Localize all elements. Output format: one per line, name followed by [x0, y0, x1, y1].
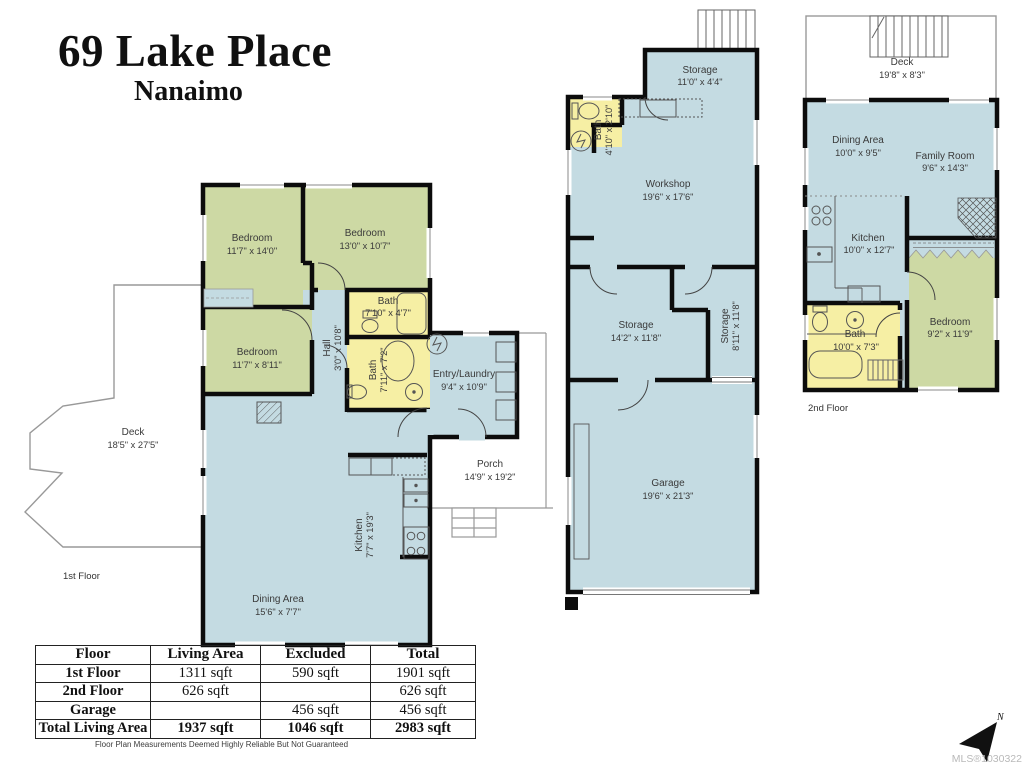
- cell-total: 1901 sqft: [371, 664, 476, 683]
- page-subtitle: Nanaimo: [134, 77, 332, 106]
- room-label-g-workshop-dims: 19'6" x 17'6": [643, 192, 694, 202]
- cell-floor: Total Living Area: [36, 720, 151, 739]
- first-floor-plan: Bedroom 11'7" x 14'0" Bedroom 13'0" x 10…: [25, 182, 553, 649]
- room-label-g-storage2-name: Storage: [618, 320, 653, 331]
- cell-total: 456 sqft: [371, 701, 476, 720]
- room-label-f1-deck-name: Deck: [122, 427, 146, 438]
- cell-excluded: [261, 683, 371, 702]
- room-label-f1-kitchen-dims: 7'7" x 19'3": [365, 512, 375, 558]
- room-label-f1-hall-name: Hall: [322, 339, 333, 356]
- col-header-living: Living Area: [151, 646, 261, 665]
- room-label-g-storage1-name: Storage: [682, 65, 717, 76]
- room-label-g-bath-dims: 4'10" x 2'10": [604, 105, 614, 156]
- cell-total: 2983 sqft: [371, 720, 476, 739]
- disclaimer-text: Floor Plan Measurements Deemed Highly Re…: [95, 740, 348, 749]
- title-block: 69 Lake Place Nanaimo: [58, 28, 332, 107]
- room-label-f1-bedroom1-dims: 11'7" x 14'0": [227, 246, 277, 256]
- room-label-f2-kitchen-name: Kitchen: [851, 233, 884, 244]
- room-label-f1-porch-name: Porch: [477, 459, 503, 470]
- cell-floor: 1st Floor: [36, 664, 151, 683]
- deck2-stairs: [870, 16, 948, 57]
- room-label-f1-deck-dims: 18'5" x 27'5": [108, 440, 159, 450]
- table-row-total: Total Living Area 1937 sqft 1046 sqft 29…: [36, 720, 476, 739]
- room-label-f1-bath2-dims: 7'11" x 7'2": [379, 347, 389, 392]
- garage-stairs: [698, 10, 755, 50]
- room-label-f1-bedroom2-name: Bedroom: [345, 228, 386, 239]
- mls-number: MLS®1030322: [952, 753, 1022, 765]
- room-label-f1-hall-dims: 3'0" x 10'8": [333, 325, 343, 371]
- room-label-f1-bedroom1-name: Bedroom: [232, 233, 273, 244]
- cell-total: 626 sqft: [371, 683, 476, 702]
- area-table-header-row: Floor Living Area Excluded Total: [36, 646, 476, 665]
- garage-building-plan: Storage 11'0" x 4'4" Bath 4'10" x 2'10" …: [565, 10, 761, 610]
- deck-outline: [25, 285, 205, 547]
- room-label-f2-dining-dims: 10'0" x 9'5": [835, 148, 881, 158]
- room-label-f1-entry-dims: 9'4" x 10'9": [441, 382, 487, 392]
- cell-excluded: 1046 sqft: [261, 720, 371, 739]
- plan-marker-square: [565, 597, 578, 610]
- cell-floor: Garage: [36, 701, 151, 720]
- cell-living: [151, 701, 261, 720]
- room-label-g-garage-dims: 19'6" x 21'3": [643, 491, 694, 501]
- cell-excluded: 590 sqft: [261, 664, 371, 683]
- table-row: Garage 456 sqft 456 sqft: [36, 701, 476, 720]
- room-label-f2-deck-name: Deck: [891, 57, 915, 68]
- floor-label-1st: 1st Floor: [63, 571, 100, 582]
- room-label-g-storage1-dims: 11'0" x 4'4": [677, 77, 722, 87]
- room-label-f2-family-name: Family Room: [916, 151, 975, 162]
- room-label-g-workshop-name: Workshop: [646, 179, 691, 190]
- room-label-f1-bath1-name: Bath: [378, 296, 399, 307]
- col-header-excluded: Excluded: [261, 646, 371, 665]
- room-label-f1-bedroom3-dims: 11'7" x 8'11": [232, 360, 282, 370]
- room-label-f2-family-dims: 9'6" x 14'3": [922, 163, 968, 173]
- room-label-g-storage3-dims: 8'11" x 11'8": [731, 301, 741, 351]
- room-label-f1-kitchen-name: Kitchen: [354, 518, 365, 551]
- area-table: Floor Living Area Excluded Total 1st Flo…: [35, 645, 476, 739]
- room-label-g-storage2-dims: 14'2" x 11'8": [611, 333, 661, 343]
- room-label-f1-porch-dims: 14'9" x 19'2": [465, 472, 516, 482]
- room-label-f2-bedroom-name: Bedroom: [930, 317, 971, 328]
- room-label-f2-bedroom-dims: 9'2" x 11'9": [927, 329, 972, 339]
- room-label-f2-kitchen-dims: 10'0" x 12'7": [844, 245, 895, 255]
- room-label-f1-bath2-name: Bath: [368, 360, 379, 381]
- page-title: 69 Lake Place: [58, 28, 332, 75]
- room-label-g-garage-name: Garage: [651, 478, 685, 489]
- room-label-f2-dining-name: Dining Area: [832, 135, 884, 146]
- room-label-f2-bath-dims: 10'0" x 7'3": [833, 342, 879, 352]
- room-label-f1-bath1-dims: 7'10" x 4'7": [365, 308, 411, 318]
- col-header-floor: Floor: [36, 646, 151, 665]
- floorplan-page: Bedroom 11'7" x 14'0" Bedroom 13'0" x 10…: [0, 0, 1024, 768]
- room-label-f1-bedroom3-name: Bedroom: [237, 347, 278, 358]
- cell-living: 626 sqft: [151, 683, 261, 702]
- room-label-f2-deck-dims: 19'8" x 8'3": [879, 70, 925, 80]
- cell-living: 1937 sqft: [151, 720, 261, 739]
- room-label-f1-entry-name: Entry/Laundry: [433, 369, 495, 380]
- compass-north-label: N: [996, 712, 1005, 723]
- table-row: 2nd Floor 626 sqft 626 sqft: [36, 683, 476, 702]
- cell-excluded: 456 sqft: [261, 701, 371, 720]
- table-row: 1st Floor 1311 sqft 590 sqft 1901 sqft: [36, 664, 476, 683]
- room-label-g-storage3-name: Storage: [720, 308, 731, 343]
- room-label-f2-bath-name: Bath: [845, 329, 866, 340]
- room-label-f1-bedroom2-dims: 13'0" x 10'7": [340, 241, 391, 251]
- second-floor-plan: Deck 19'8" x 8'3" Dining Area 10'0" x 9'…: [802, 16, 1001, 414]
- room-label-g-bath-name: Bath: [593, 120, 604, 141]
- floor-label-2nd: 2nd Floor: [808, 403, 848, 414]
- col-header-total: Total: [371, 646, 476, 665]
- room-label-f1-dining-dims: 15'6" x 7'7": [255, 607, 301, 617]
- cell-floor: 2nd Floor: [36, 683, 151, 702]
- room-label-f1-dining-name: Dining Area: [252, 594, 304, 605]
- cell-living: 1311 sqft: [151, 664, 261, 683]
